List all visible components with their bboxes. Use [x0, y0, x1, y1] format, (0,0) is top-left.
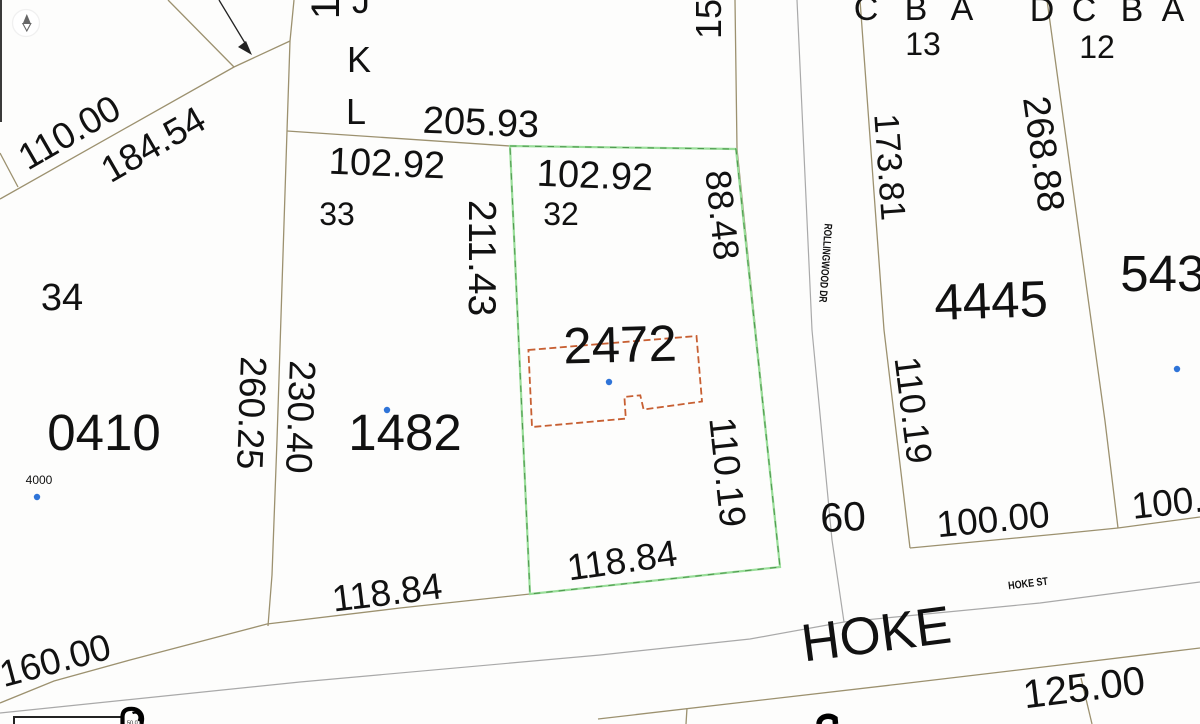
svg-text:211.43: 211.43 [460, 200, 503, 316]
svg-text:C: C [854, 0, 879, 28]
svg-text:1: 1 [304, 0, 348, 19]
svg-text:13: 13 [905, 26, 941, 62]
svg-text:0410: 0410 [47, 404, 160, 461]
svg-text:173.81: 173.81 [866, 112, 912, 222]
svg-text:B: B [1121, 0, 1144, 29]
svg-text:A: A [951, 0, 974, 28]
svg-text:D: D [1030, 0, 1055, 29]
svg-text:15: 15 [688, 0, 729, 39]
svg-text:32: 32 [543, 196, 579, 232]
svg-text:102.92: 102.92 [328, 141, 446, 188]
svg-text:2472: 2472 [563, 315, 678, 375]
svg-text:L: L [346, 91, 366, 132]
svg-text:205.93: 205.93 [422, 100, 540, 147]
svg-text:4445: 4445 [933, 270, 1048, 331]
svg-text:1482: 1482 [348, 404, 461, 461]
svg-text:34: 34 [41, 277, 83, 319]
svg-text:230.40: 230.40 [278, 360, 323, 475]
svg-text:33: 33 [319, 196, 355, 232]
svg-text:K: K [347, 39, 371, 80]
svg-text:B: B [905, 0, 928, 28]
svg-text:J: J [352, 0, 370, 21]
svg-text:60: 60 [819, 493, 867, 541]
svg-text:C: C [1072, 0, 1097, 29]
svg-text:5437: 5437 [1120, 245, 1200, 302]
svg-text:102.92: 102.92 [536, 153, 654, 200]
svg-text:4000: 4000 [26, 473, 53, 487]
svg-text:12: 12 [1079, 29, 1115, 65]
svg-text:260.25: 260.25 [229, 356, 274, 471]
svg-text:A: A [1162, 0, 1185, 29]
svg-text:50.0: 50.0 [127, 721, 138, 724]
